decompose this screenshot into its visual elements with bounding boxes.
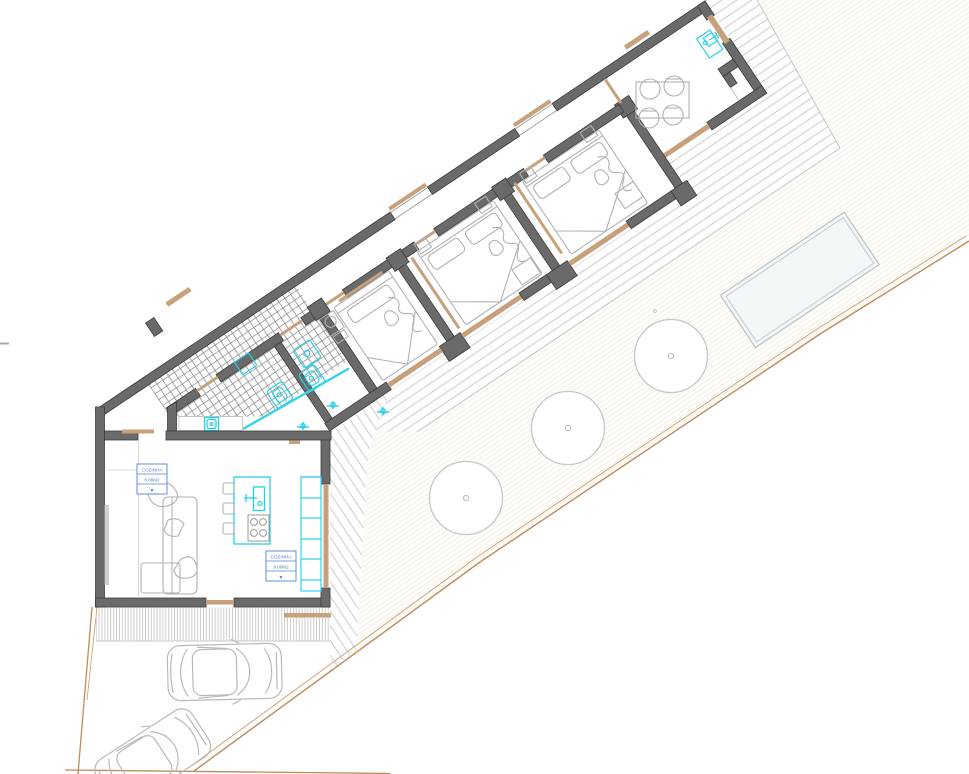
svg-text:▼: ▼ — [150, 488, 155, 494]
svg-text:COZINHA: COZINHA — [142, 468, 164, 473]
svg-text:COZINHA: COZINHA — [271, 555, 293, 560]
svg-text:9.00M2: 9.00M2 — [273, 565, 289, 570]
svg-text:8.00M2: 8.00M2 — [144, 478, 160, 483]
svg-text:▼: ▼ — [279, 575, 284, 581]
